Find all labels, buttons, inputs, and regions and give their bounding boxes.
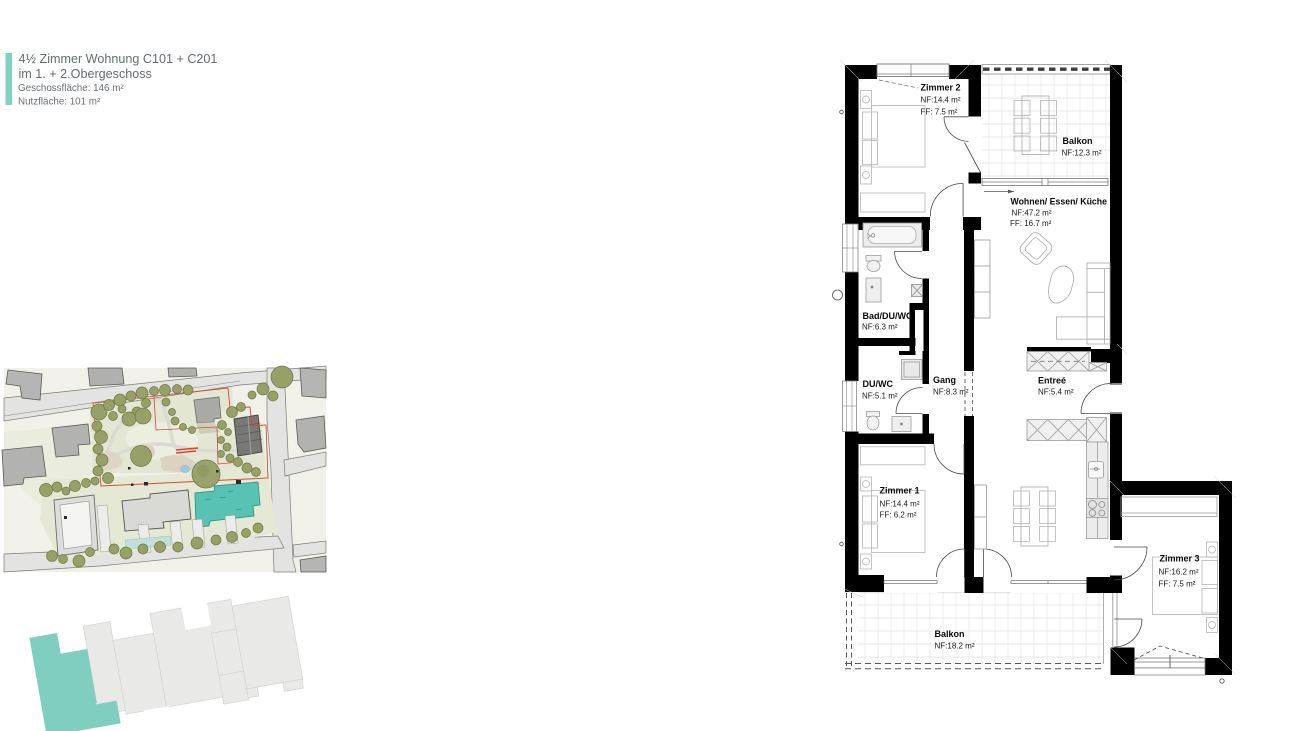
svg-text:Balkon: Balkon <box>1063 136 1093 146</box>
svg-text:DU/WC: DU/WC <box>863 379 894 389</box>
svg-text:FF: 16.7 m²: FF: 16.7 m² <box>1010 219 1052 228</box>
svg-text:FF: 7.5 m²: FF: 7.5 m² <box>921 108 958 117</box>
svg-text:4½ Zimmer Wohnung C101 + C201: 4½ Zimmer Wohnung C101 + C201 <box>19 52 218 66</box>
svg-text:Gang: Gang <box>933 375 956 385</box>
svg-text:NF:14.4 m²: NF:14.4 m² <box>921 96 961 105</box>
svg-text:NF:5.1 m²: NF:5.1 m² <box>862 392 898 401</box>
svg-text:NF:16.2 m²: NF:16.2 m² <box>1159 568 1199 577</box>
svg-text:NF:6.3 m²: NF:6.3 m² <box>862 323 898 332</box>
svg-text:Nutzfläche: 101 m²: Nutzfläche: 101 m² <box>18 97 101 108</box>
svg-text:NF:5.4 m²: NF:5.4 m² <box>1038 388 1074 397</box>
svg-text:Bad/DU/WC: Bad/DU/WC <box>863 311 913 321</box>
svg-text:NF:47.2 m²: NF:47.2 m² <box>1012 209 1052 218</box>
svg-text:FF: 6.2 m²: FF: 6.2 m² <box>880 511 917 520</box>
svg-text:Entreé: Entreé <box>1038 376 1066 386</box>
svg-text:Geschossfläche: 146 m²: Geschossfläche: 146 m² <box>18 83 124 94</box>
svg-text:Wohnen/ Essen/ Küche: Wohnen/ Essen/ Küche <box>1011 197 1108 207</box>
svg-text:Zimmer 2: Zimmer 2 <box>921 83 961 93</box>
svg-text:NF:12.3 m²: NF:12.3 m² <box>1062 149 1102 158</box>
svg-text:im 1. + 2.Obergeschoss: im 1. + 2.Obergeschoss <box>19 67 152 81</box>
svg-text:FF: 7.5 m²: FF: 7.5 m² <box>1159 580 1196 589</box>
svg-text:Zimmer 1: Zimmer 1 <box>880 486 920 496</box>
svg-text:NF:14.4 m²: NF:14.4 m² <box>880 500 920 509</box>
svg-text:NF:8.3 m²: NF:8.3 m² <box>933 388 969 397</box>
svg-text:Balkon: Balkon <box>935 629 965 639</box>
svg-text:Zimmer 3: Zimmer 3 <box>1160 554 1200 564</box>
svg-text:NF:18.2 m²: NF:18.2 m² <box>935 642 975 651</box>
